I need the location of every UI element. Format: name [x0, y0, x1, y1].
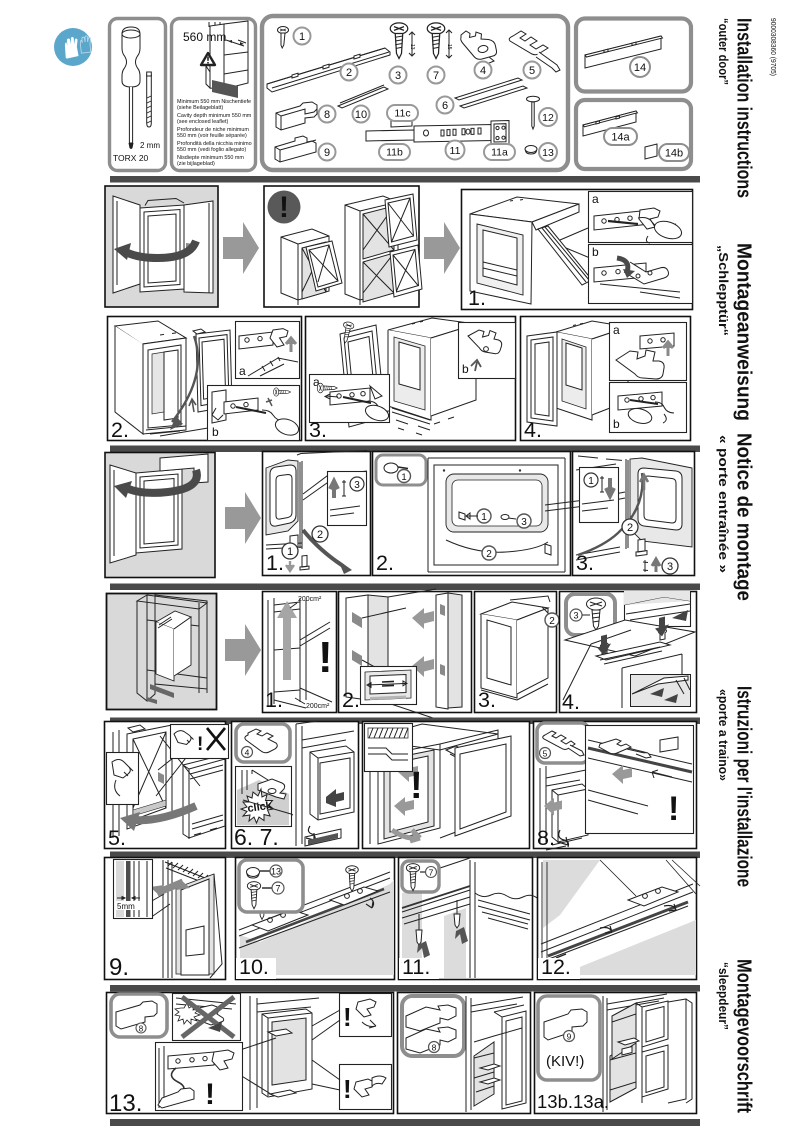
svg-text:12.: 12.: [541, 955, 571, 979]
svg-text:!: !: [318, 633, 333, 682]
svg-text:7: 7: [433, 70, 439, 82]
svg-text:!: !: [343, 1074, 352, 1104]
svg-text:5mm: 5mm: [117, 902, 135, 911]
svg-text:1: 1: [287, 546, 293, 558]
svg-text:1: 1: [401, 472, 406, 483]
svg-text:1.: 1.: [266, 551, 284, 575]
svg-text:a: a: [613, 323, 620, 337]
svg-text:1: 1: [481, 512, 487, 523]
svg-text:14a: 14a: [611, 132, 630, 144]
svg-text:“outer door”: “outer door”: [716, 18, 730, 85]
svg-text:3.: 3.: [309, 418, 327, 442]
svg-text:a: a: [592, 192, 599, 206]
svg-text:13b.13a.: 13b.13a.: [537, 1091, 609, 1112]
svg-text:1.: 1.: [265, 688, 283, 712]
svg-text:11: 11: [450, 145, 461, 157]
svg-text:„Schlepptür“: „Schlepptür“: [716, 245, 730, 336]
svg-text:3: 3: [354, 480, 360, 491]
svg-text:12: 12: [542, 112, 554, 124]
svg-text:10.: 10.: [239, 955, 269, 979]
svg-text:(see enclosed leaflet): (see enclosed leaflet): [177, 119, 228, 125]
svg-text:1: 1: [299, 31, 305, 43]
svg-text:1: 1: [588, 476, 594, 487]
svg-text:3: 3: [521, 517, 527, 528]
svg-text:5: 5: [529, 65, 535, 77]
svg-text:3.: 3.: [478, 688, 496, 712]
svg-text:b: b: [613, 417, 620, 431]
svg-text:15: 15: [446, 44, 452, 50]
svg-text:13: 13: [542, 147, 554, 159]
svg-text:9: 9: [324, 147, 330, 159]
svg-text:13: 13: [409, 44, 415, 50]
svg-text:8.: 8.: [537, 826, 555, 850]
svg-text:3: 3: [573, 611, 578, 621]
svg-text:200cm²: 200cm²: [306, 703, 330, 710]
svg-text:3: 3: [667, 561, 673, 573]
svg-text:1.: 1.: [468, 286, 486, 310]
svg-text:!: !: [279, 191, 289, 224]
svg-text:« porte entraînée »: « porte entraînée »: [716, 435, 730, 573]
svg-text:2: 2: [317, 529, 323, 541]
svg-text:11.: 11.: [402, 955, 430, 979]
svg-text:11b: 11b: [386, 147, 403, 159]
svg-text:2.: 2.: [111, 418, 129, 442]
svg-text:4: 4: [480, 65, 486, 77]
svg-text:550 mm (vedi foglio allegato): 550 mm (vedi foglio allegato): [177, 147, 246, 153]
svg-text:b: b: [592, 245, 599, 259]
svg-text:7: 7: [275, 884, 280, 894]
svg-text:Notice de montage: Notice de montage: [733, 433, 755, 601]
svg-text:8: 8: [139, 1025, 144, 1034]
svg-text:2.: 2.: [342, 688, 360, 712]
svg-text:5: 5: [543, 749, 548, 759]
svg-text:560 mm: 560 mm: [183, 30, 226, 44]
svg-text:Montageanweisung: Montageanweisung: [733, 243, 755, 421]
svg-text:Installation instructions: Installation instructions: [733, 18, 755, 198]
svg-text:b: b: [462, 362, 469, 376]
svg-text:4.: 4.: [524, 418, 542, 442]
svg-text:Montagevoorschrift: Montagevoorschrift: [733, 959, 755, 1113]
svg-text:(siehe Beilageblatt): (siehe Beilageblatt): [177, 105, 223, 111]
svg-text:4: 4: [245, 748, 250, 758]
svg-text:a: a: [239, 364, 246, 378]
svg-text:TORX 20: TORX 20: [113, 153, 149, 163]
svg-text:(zie bijlageblad): (zie bijlageblad): [177, 161, 215, 167]
svg-text:6: 6: [442, 100, 448, 112]
svg-text:!: !: [343, 1002, 352, 1032]
svg-text:3.: 3.: [576, 551, 594, 575]
svg-text:(KIV!): (KIV!): [546, 1053, 584, 1070]
svg-text:“sleepdeur”: “sleepdeur”: [716, 962, 730, 1030]
svg-text:200cm²: 200cm²: [298, 596, 322, 603]
svg-text:!: !: [205, 1078, 215, 1111]
svg-text:2: 2: [627, 522, 633, 534]
svg-text:13: 13: [271, 867, 281, 877]
svg-text:11a: 11a: [491, 147, 508, 159]
svg-text:9.: 9.: [109, 954, 129, 981]
svg-text:11c: 11c: [394, 108, 410, 120]
svg-text:2: 2: [346, 67, 352, 79]
svg-text:b: b: [212, 425, 219, 439]
svg-text:9000308360 (9705): 9000308360 (9705): [769, 18, 776, 76]
svg-text:10: 10: [355, 109, 367, 121]
svg-text:13.: 13.: [109, 1090, 142, 1117]
svg-text:5.: 5.: [108, 826, 126, 850]
svg-text:8: 8: [324, 109, 330, 121]
svg-text:!: !: [197, 734, 203, 755]
svg-text:2 mm: 2 mm: [140, 141, 160, 150]
svg-text:2.: 2.: [376, 551, 394, 575]
svg-text:6. 7.: 6. 7.: [234, 824, 279, 850]
svg-text:14b: 14b: [665, 148, 683, 160]
svg-text:«porte a traino»: «porte a traino»: [716, 689, 730, 781]
svg-text:7: 7: [429, 868, 434, 878]
svg-text:!: !: [668, 790, 679, 828]
svg-text:2: 2: [549, 616, 555, 627]
svg-text:9: 9: [567, 1032, 572, 1042]
svg-text:14: 14: [634, 62, 646, 74]
svg-text:2: 2: [486, 549, 492, 560]
svg-text:3: 3: [395, 70, 401, 82]
svg-text:8: 8: [432, 1043, 437, 1053]
svg-text:4.: 4.: [562, 690, 580, 714]
svg-text:Istruzioni per l'installazione: Istruzioni per l'installazione: [733, 686, 755, 887]
svg-text:550 mm (voir feuille séparée): 550 mm (voir feuille séparée): [177, 133, 247, 139]
